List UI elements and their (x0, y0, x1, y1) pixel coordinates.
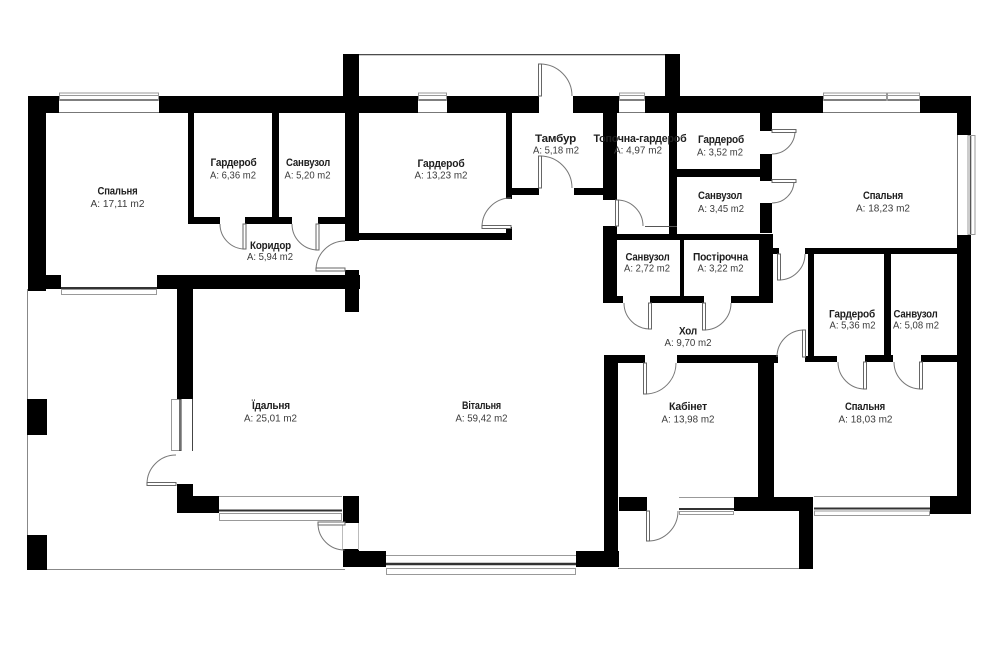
svg-text:Топочна-гардероб: Топочна-гардероб (594, 133, 687, 145)
svg-text:Санвузол: Санвузол (698, 190, 742, 202)
svg-text:A: 6,36 m2: A: 6,36 m2 (210, 170, 256, 182)
svg-text:A: 4,97 m2: A: 4,97 m2 (614, 145, 662, 157)
svg-text:A: 5,20 m2: A: 5,20 m2 (285, 170, 331, 182)
svg-text:Хол: Хол (679, 326, 697, 338)
svg-text:A: 2,72 m2: A: 2,72 m2 (624, 263, 670, 275)
svg-text:Спальня: Спальня (863, 190, 903, 202)
svg-text:Спальня: Спальня (845, 401, 885, 413)
svg-text:Тамбур: Тамбур (535, 133, 577, 145)
svg-text:A: 5,36 m2: A: 5,36 m2 (830, 320, 876, 332)
svg-text:Кабінет: Кабінет (669, 401, 708, 413)
svg-text:A: 18,03 m2: A: 18,03 m2 (839, 414, 893, 426)
svg-text:A: 3,52 m2: A: 3,52 m2 (697, 147, 743, 159)
svg-text:Спальня: Спальня (98, 186, 138, 198)
svg-text:A: 5,94 m2: A: 5,94 m2 (247, 251, 293, 263)
svg-text:A: 18,23 m2: A: 18,23 m2 (856, 203, 910, 215)
svg-text:A: 5,08 m2: A: 5,08 m2 (893, 320, 939, 332)
svg-text:A: 25,01 m2: A: 25,01 m2 (244, 413, 297, 425)
svg-text:Гардероб: Гардероб (418, 158, 465, 170)
svg-text:Гардероб: Гардероб (698, 134, 744, 146)
svg-text:Санвузол: Санвузол (286, 157, 330, 169)
svg-text:A: 3,22 m2: A: 3,22 m2 (698, 263, 744, 275)
svg-text:Гардероб: Гардероб (211, 157, 257, 169)
svg-text:A: 9,70 m2: A: 9,70 m2 (665, 337, 712, 349)
svg-text:Вітальня: Вітальня (462, 400, 501, 412)
svg-text:Їдальня: Їдальня (251, 399, 290, 412)
svg-text:A: 17,11 m2: A: 17,11 m2 (91, 198, 145, 210)
svg-text:A: 3,45 m2: A: 3,45 m2 (698, 203, 744, 215)
svg-text:A: 13,98 m2: A: 13,98 m2 (662, 414, 715, 426)
svg-text:A: 59,42 m2: A: 59,42 m2 (456, 413, 508, 425)
svg-text:A: 5,18 m2: A: 5,18 m2 (533, 145, 579, 157)
svg-text:A: 13,23 m2: A: 13,23 m2 (415, 170, 468, 182)
